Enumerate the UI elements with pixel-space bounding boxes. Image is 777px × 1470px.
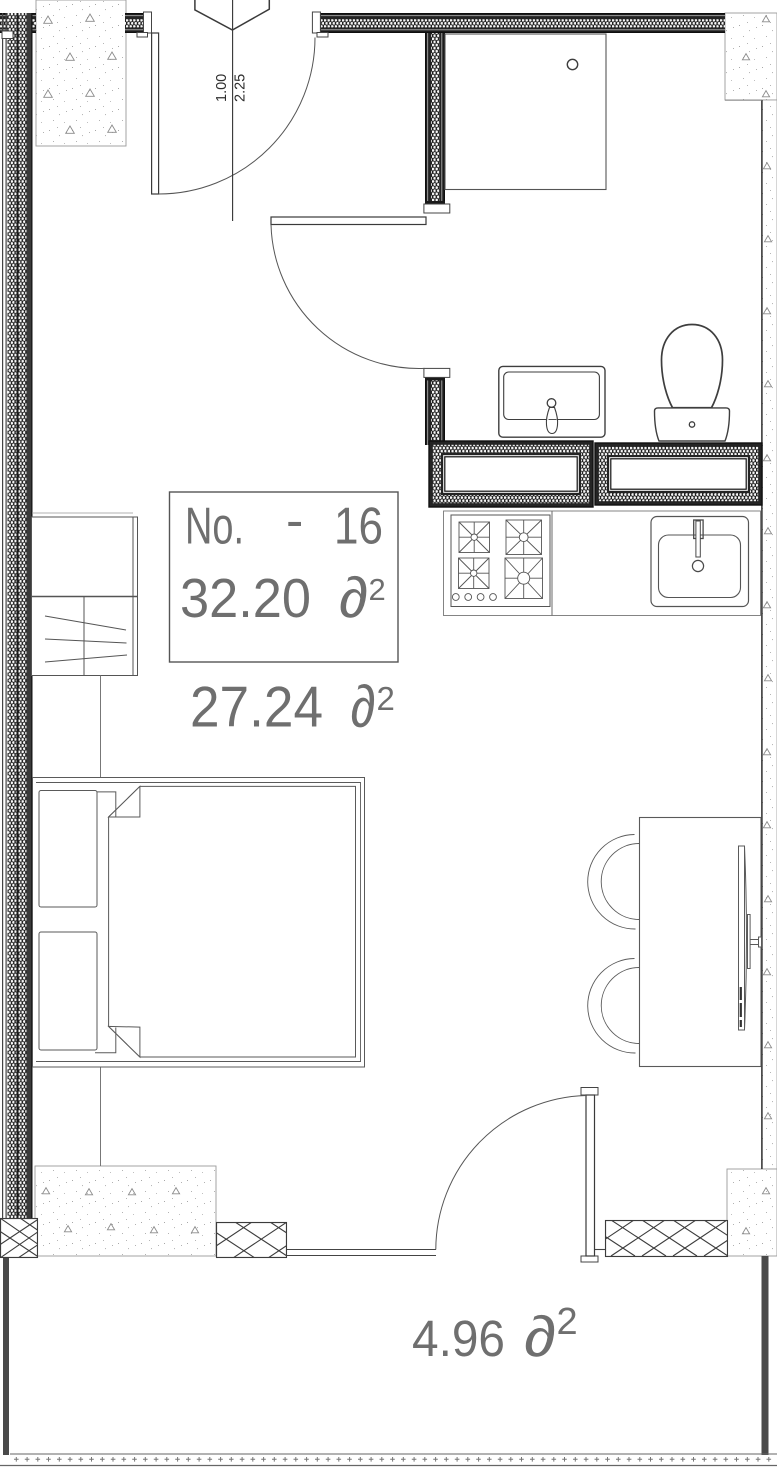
svg-text:2: 2	[557, 1301, 578, 1343]
svg-text:No.: No.	[185, 498, 244, 556]
svg-text:∂: ∂	[351, 674, 376, 740]
svg-text:-: -	[286, 492, 303, 550]
svg-text:∂: ∂	[339, 566, 368, 630]
svg-text:4.96: 4.96	[412, 1310, 505, 1367]
svg-text:2: 2	[369, 572, 386, 607]
svg-text:∂: ∂	[524, 1305, 556, 1369]
svg-text:32.20: 32.20	[180, 567, 311, 629]
svg-text:1.00: 1.00	[214, 74, 230, 102]
svg-text:16: 16	[334, 498, 383, 556]
svg-text:27.24: 27.24	[190, 676, 323, 740]
svg-text:2: 2	[377, 680, 395, 717]
svg-text:2.25: 2.25	[233, 74, 249, 102]
